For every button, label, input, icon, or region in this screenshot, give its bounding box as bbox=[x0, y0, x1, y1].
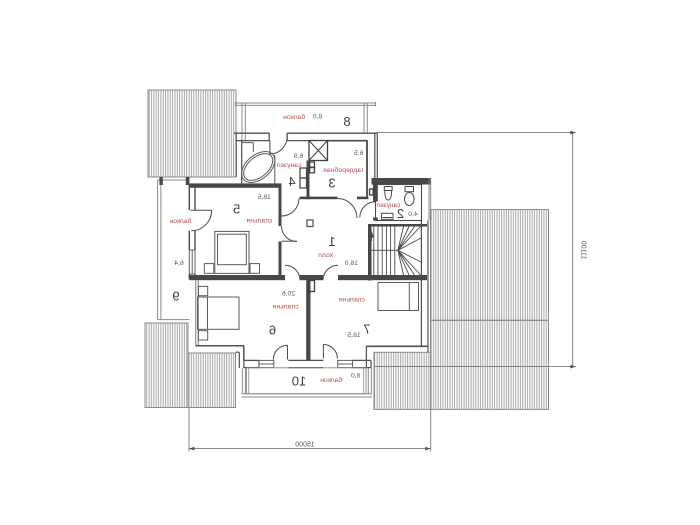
svg-text:6,4: 6,4 bbox=[174, 260, 184, 267]
svg-text:7: 7 bbox=[363, 322, 370, 337]
svg-text:15000: 15000 bbox=[295, 442, 315, 449]
svg-text:6,5: 6,5 bbox=[354, 150, 364, 157]
svg-text:18,5: 18,5 bbox=[257, 194, 270, 201]
svg-text:20,6: 20,6 bbox=[282, 291, 295, 298]
svg-text:балкон: балкон bbox=[283, 113, 305, 121]
svg-text:спальня: спальня bbox=[246, 218, 272, 225]
svg-text:8,0: 8,0 bbox=[351, 373, 361, 380]
svg-text:11100: 11100 bbox=[580, 241, 587, 260]
svg-text:балкон: балкон bbox=[320, 376, 342, 384]
svg-text:18,5: 18,5 bbox=[347, 332, 360, 339]
svg-text:4: 4 bbox=[288, 174, 295, 189]
svg-text:5: 5 bbox=[233, 202, 240, 217]
svg-text:спальня: спальня bbox=[272, 303, 298, 310]
svg-text:6: 6 bbox=[269, 323, 276, 338]
svg-text:8,0: 8,0 bbox=[313, 114, 323, 121]
svg-text:16,0: 16,0 bbox=[345, 260, 358, 267]
svg-text:холл: холл bbox=[318, 252, 333, 259]
svg-text:спальня: спальня bbox=[339, 297, 365, 304]
svg-text:3: 3 bbox=[328, 176, 335, 191]
svg-text:1: 1 bbox=[328, 234, 335, 249]
svg-text:4,0: 4,0 bbox=[408, 211, 418, 218]
svg-text:санузел: санузел bbox=[277, 162, 302, 169]
svg-text:8: 8 bbox=[343, 114, 350, 129]
svg-text:9: 9 bbox=[172, 289, 179, 304]
svg-text:балкон: балкон bbox=[169, 217, 191, 225]
svg-text:10: 10 bbox=[292, 374, 306, 389]
svg-text:2: 2 bbox=[397, 206, 404, 221]
svg-text:санузел: санузел bbox=[376, 202, 400, 209]
svg-text:гардеробная: гардеробная bbox=[323, 166, 363, 174]
svg-text:6,9: 6,9 bbox=[294, 153, 304, 160]
